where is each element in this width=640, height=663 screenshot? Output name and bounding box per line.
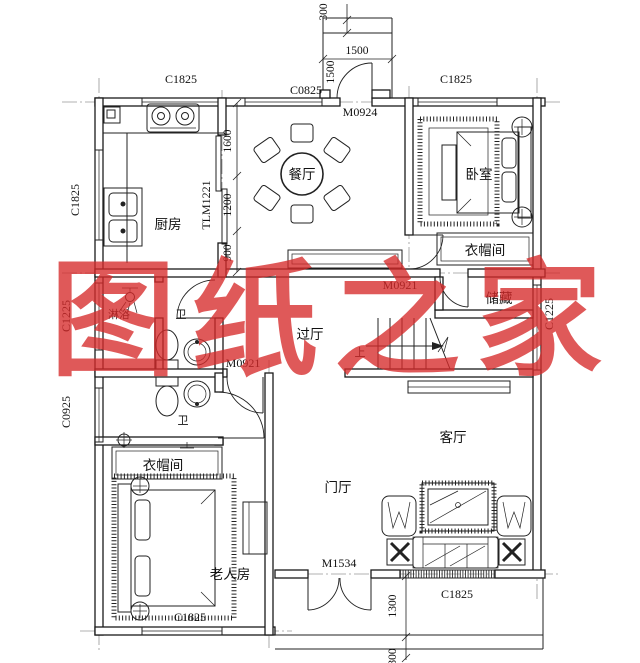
stairs [366,318,510,393]
room-label-living: 客厅 [440,429,467,445]
door-storage [440,277,468,307]
dim-label-shaft-width: 1500 [346,45,369,57]
nightstand [131,477,149,495]
dim-label-porch-depth: 1300 [387,594,399,617]
window-label-left-shower: C1225 [59,300,73,332]
plant-table-right [499,539,525,565]
room-label-foyer: 门厅 [325,480,352,495]
dim-label-shaft-depth: 1500 [325,60,337,83]
window-label-top-left: C1825 [165,72,197,86]
top-shaft [320,18,392,98]
living-room-furniture [382,483,531,568]
dining-table-set [253,124,402,268]
kitchen-sink [104,188,142,246]
door-label-hall-upper: M0921 [383,278,418,292]
room-label-bath-upper: 卫 [176,309,187,321]
room-label-shower: 淋浴 [108,308,130,321]
door-entry-M1534 [308,578,371,610]
elder-room-furniture [112,432,267,620]
window-label-living: C1825 [441,587,473,601]
room-label-kitchen: 厨房 [155,217,182,232]
door-bath-lower [218,392,264,438]
door-suite [409,235,443,269]
room-label-hallway: 过厅 [297,327,324,342]
nightstand [512,117,532,137]
door-hall-lower [227,377,263,413]
window-label-left-bath: C0925 [59,396,73,428]
room-label-cloakroom-top: 衣帽间 [465,243,506,258]
nightstand [512,207,532,227]
window-label-right-storage: C1225 [542,298,556,330]
door-label-entry: M1534 [322,556,357,570]
door-label-sliding: TLM1221 [199,180,213,229]
basin-lower [184,381,210,407]
door-label-top: M0924 [343,105,378,119]
room-label-elder: 老人房 [210,567,251,582]
plant-table-left [387,539,413,565]
floor-plan-page: 厨房 餐厅 卧室 衣帽间 储藏 过厅 淋浴 卫 卫 衣帽间 老人房 门厅 客厅 … [0,0,640,663]
nightstand [131,602,149,620]
window-label-top-mid: C0825 [290,83,322,97]
floor-plan-canvas: 厨房 餐厅 卧室 衣帽间 储藏 过厅 淋浴 卫 卫 衣帽间 老人房 门厅 客厅 … [0,0,640,663]
room-label-storage: 储藏 [486,291,514,306]
armchair-left [382,496,416,536]
stairs-up-label: 上 [355,346,366,359]
dim-label-porch-step: 300 [387,648,399,663]
stove [147,104,199,132]
toilet-lower [156,377,178,416]
door-label-hall-lower: M0921 [226,356,261,370]
room-label-cloakroom-bottom: 衣帽间 [143,458,184,473]
dim-label-dining-mid: 1200 [222,193,234,216]
basin-upper [184,339,210,365]
dim-label-dining-lower: 900 [222,244,234,262]
coffee-table [422,483,494,531]
room-label-dining: 餐厅 [289,167,316,182]
room-label-bedroom: 卧室 [466,166,493,182]
window-label-top-right: C1825 [440,72,472,86]
armchair-right [497,496,531,536]
room-label-bath-lower: 卫 [178,415,189,427]
porch [275,578,543,649]
window-label-left-kitchen: C1825 [68,184,82,216]
window-label-bottom-left: C1825 [174,610,206,624]
door-top-M0924 [337,63,372,98]
bathroom-fixtures [119,288,210,416]
sofa [413,537,498,568]
dim-label-shaft-offset: 300 [318,3,330,21]
dim-label-dining-upper: 1600 [222,129,234,152]
